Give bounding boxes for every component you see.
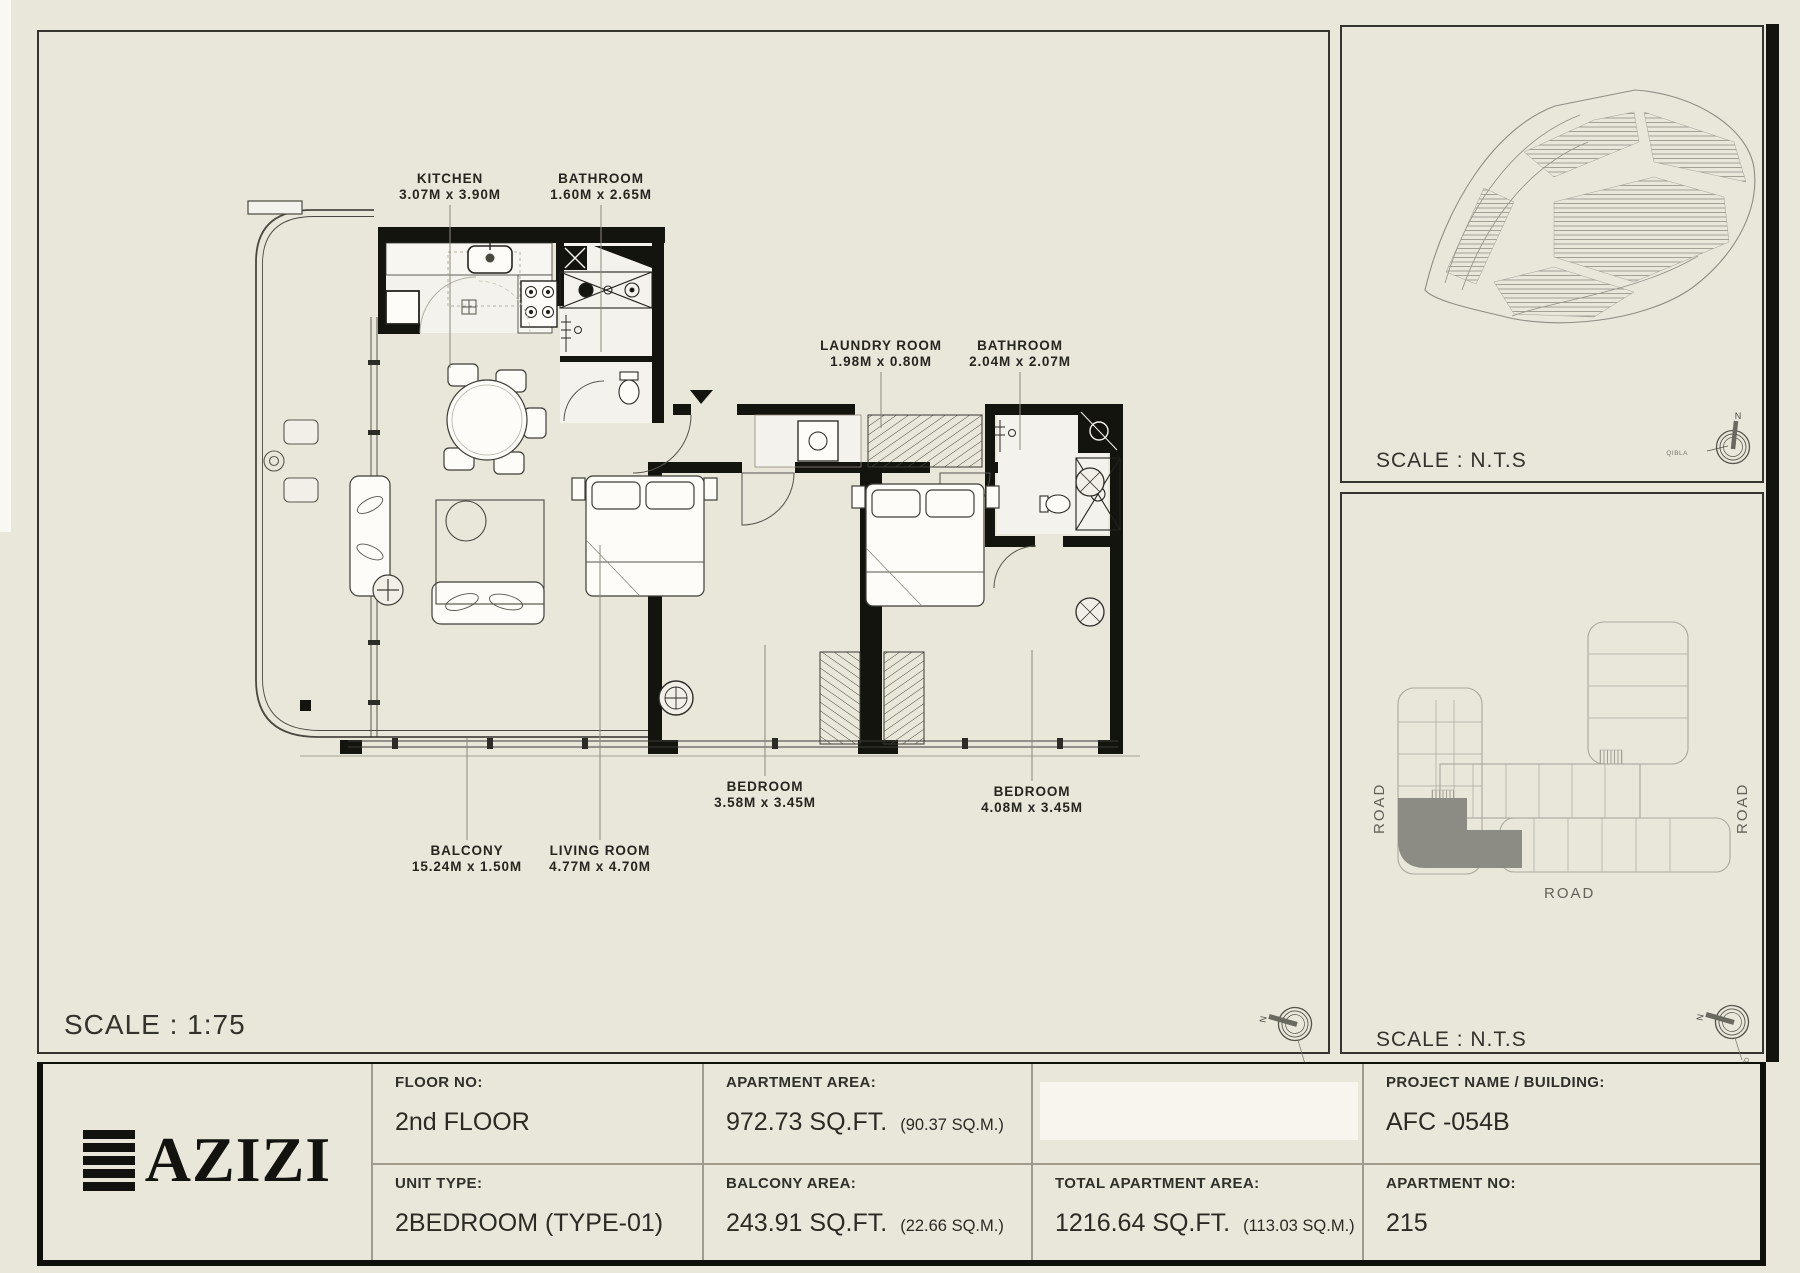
site-scale-label: SCALE : N.T.S xyxy=(1376,449,1527,472)
room-dims: 3.07M x 3.90M xyxy=(399,187,501,203)
room-label-kitchen: KITCHEN 3.07M x 3.90M xyxy=(399,171,501,202)
building-locator-panel xyxy=(1340,492,1764,1054)
room-name: BALCONY xyxy=(412,843,522,859)
blank-cell-box xyxy=(1040,1082,1358,1140)
balcony-area-metric: (22.66 SQ.M.) xyxy=(900,1217,1004,1235)
room-dims: 2.04M x 2.07M xyxy=(969,354,1071,370)
sheet-right-border xyxy=(1766,24,1779,1062)
total-area-cell: TOTAL APARTMENT AREA: 1216.64 SQ.FT.(113… xyxy=(1031,1165,1362,1260)
azizi-bars-icon xyxy=(83,1130,135,1191)
room-dims: 3.58M x 3.45M xyxy=(714,795,816,811)
apartment-no-cell: APARTMENT NO: 215 xyxy=(1362,1165,1766,1260)
room-name: LAUNDRY ROOM xyxy=(820,338,942,354)
room-name: LIVING ROOM xyxy=(549,843,651,859)
apartment-no-value: 215 xyxy=(1386,1209,1766,1237)
room-label-bedroom-1: BEDROOM 3.58M x 3.45M xyxy=(714,779,816,810)
brand-name: AZIZI xyxy=(145,1123,331,1197)
project-name-cell: PROJECT NAME / BUILDING: AFC -054B xyxy=(1362,1064,1766,1163)
balcony-area-cell: BALCONY AREA: 243.91 SQ.FT.(22.66 SQ.M.) xyxy=(702,1165,1031,1260)
page-edge-strip xyxy=(0,0,11,532)
room-label-balcony: BALCONY 15.24M x 1.50M xyxy=(412,843,522,874)
total-area-label: TOTAL APARTMENT AREA: xyxy=(1055,1175,1362,1193)
room-label-bedroom-2: BEDROOM 4.08M x 3.45M xyxy=(981,784,1083,815)
apartment-area-value: 972.73 SQ.FT.(90.37 SQ.M.) xyxy=(726,1108,1031,1139)
room-dims: 1.98M x 0.80M xyxy=(820,354,942,370)
site-map-panel xyxy=(1340,25,1764,483)
room-name: BATHROOM xyxy=(969,338,1071,354)
main-scale-label: SCALE : 1:75 xyxy=(64,1010,246,1040)
apartment-area-label: APARTMENT AREA: xyxy=(726,1074,1031,1092)
unit-type-value: 2BEDROOM (TYPE-01) xyxy=(395,1209,702,1237)
unit-type-cell: UNIT TYPE: 2BEDROOM (TYPE-01) xyxy=(371,1165,702,1260)
apartment-no-label: APARTMENT NO: xyxy=(1386,1175,1766,1193)
room-dims: 1.60M x 2.65M xyxy=(550,187,652,203)
brand-logo: AZIZI xyxy=(43,1064,371,1256)
room-name: BEDROOM xyxy=(714,779,816,795)
room-dims: 4.77M x 4.70M xyxy=(549,859,651,875)
main-plan-panel xyxy=(37,30,1330,1054)
project-name-value: AFC -054B xyxy=(1386,1108,1766,1136)
floor-plan-sheet: N QIBLA xyxy=(0,0,1800,1273)
project-name-label: PROJECT NAME / BUILDING: xyxy=(1386,1074,1766,1092)
balcony-area-value: 243.91 SQ.FT.(22.66 SQ.M.) xyxy=(726,1209,1031,1240)
room-label-bathroom-2: BATHROOM 2.04M x 2.07M xyxy=(969,338,1071,369)
room-name: BATHROOM xyxy=(550,171,652,187)
room-name: KITCHEN xyxy=(399,171,501,187)
room-label-laundry: LAUNDRY ROOM 1.98M x 0.80M xyxy=(820,338,942,369)
total-area-metric: (113.03 SQ.M.) xyxy=(1243,1217,1355,1235)
floor-no-label: FLOOR NO: xyxy=(395,1074,702,1092)
room-label-bathroom-1: BATHROOM 1.60M x 2.65M xyxy=(550,171,652,202)
floor-no-value: 2nd FLOOR xyxy=(395,1108,702,1136)
apartment-area-metric: (90.37 SQ.M.) xyxy=(900,1116,1004,1134)
room-label-living: LIVING ROOM 4.77M x 4.70M xyxy=(549,843,651,874)
total-area-value: 1216.64 SQ.FT.(113.03 SQ.M.) xyxy=(1055,1209,1362,1240)
balcony-area-label: BALCONY AREA: xyxy=(726,1175,1031,1193)
apartment-area-cell: APARTMENT AREA: 972.73 SQ.FT.(90.37 SQ.M… xyxy=(702,1064,1031,1163)
room-dims: 4.08M x 3.45M xyxy=(981,800,1083,816)
floor-no-cell: FLOOR NO: 2nd FLOOR xyxy=(371,1064,702,1163)
room-dims: 15.24M x 1.50M xyxy=(412,859,522,875)
unit-type-label: UNIT TYPE: xyxy=(395,1175,702,1193)
room-name: BEDROOM xyxy=(981,784,1083,800)
building-scale-label: SCALE : N.T.S xyxy=(1376,1028,1527,1051)
title-block-table: AZIZI FLOOR NO: 2nd FLOOR APARTMENT AREA… xyxy=(37,1062,1766,1266)
